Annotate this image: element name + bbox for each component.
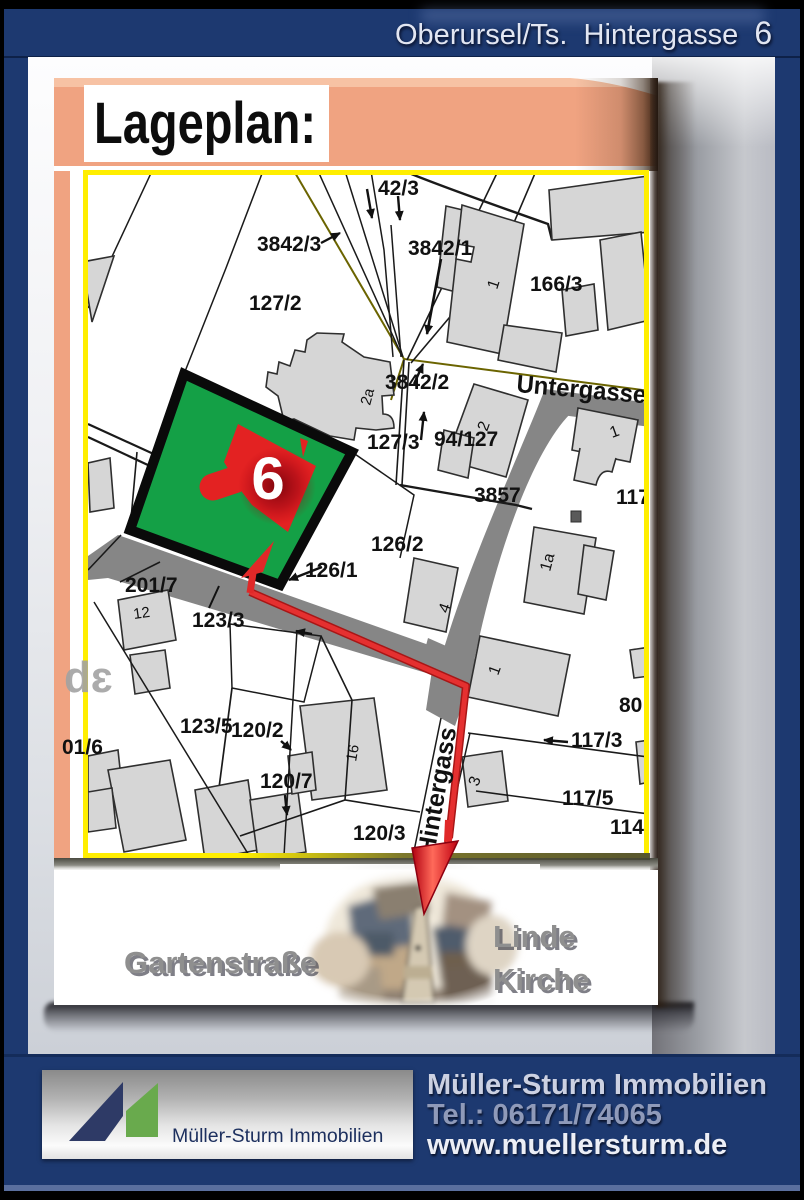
svg-text:3842/1: 3842/1 <box>408 237 473 260</box>
svg-text:80: 80 <box>619 694 642 717</box>
svg-text:120/3: 120/3 <box>353 822 406 845</box>
svg-text:01/6: 01/6 <box>62 736 103 759</box>
svg-text:114: 114 <box>610 816 644 839</box>
svg-text:120/2: 120/2 <box>231 719 284 742</box>
svg-text:127/3: 127/3 <box>367 431 420 454</box>
svg-text:dɛ: dɛ <box>64 653 113 702</box>
svg-text:117/3: 117/3 <box>571 729 622 752</box>
svg-text:120/7: 120/7 <box>260 770 313 793</box>
svg-text:123/3: 123/3 <box>192 609 245 632</box>
svg-text:6: 6 <box>251 445 284 512</box>
svg-text:127/2: 127/2 <box>249 292 302 315</box>
svg-text:126/2: 126/2 <box>371 533 424 556</box>
svg-text:201/7: 201/7 <box>125 574 178 597</box>
svg-text:16: 16 <box>343 743 363 762</box>
svg-text:Müller-Sturm Immobilien: Müller-Sturm Immobilien <box>172 1125 383 1147</box>
svg-text:Lageplan:: Lageplan: <box>94 91 316 156</box>
svg-text:Gartenstraße: Gartenstraße <box>124 945 317 980</box>
svg-text:117/5: 117/5 <box>562 787 614 810</box>
svg-text:12: 12 <box>132 604 151 623</box>
svg-text:3842/3: 3842/3 <box>257 233 321 256</box>
svg-text:Kirche: Kirche <box>493 962 589 997</box>
svg-text:Linde: Linde <box>493 919 576 954</box>
svg-text:3857: 3857 <box>474 484 521 507</box>
svg-text:166/3: 166/3 <box>530 273 583 296</box>
svg-text:123/5: 123/5 <box>180 715 233 738</box>
